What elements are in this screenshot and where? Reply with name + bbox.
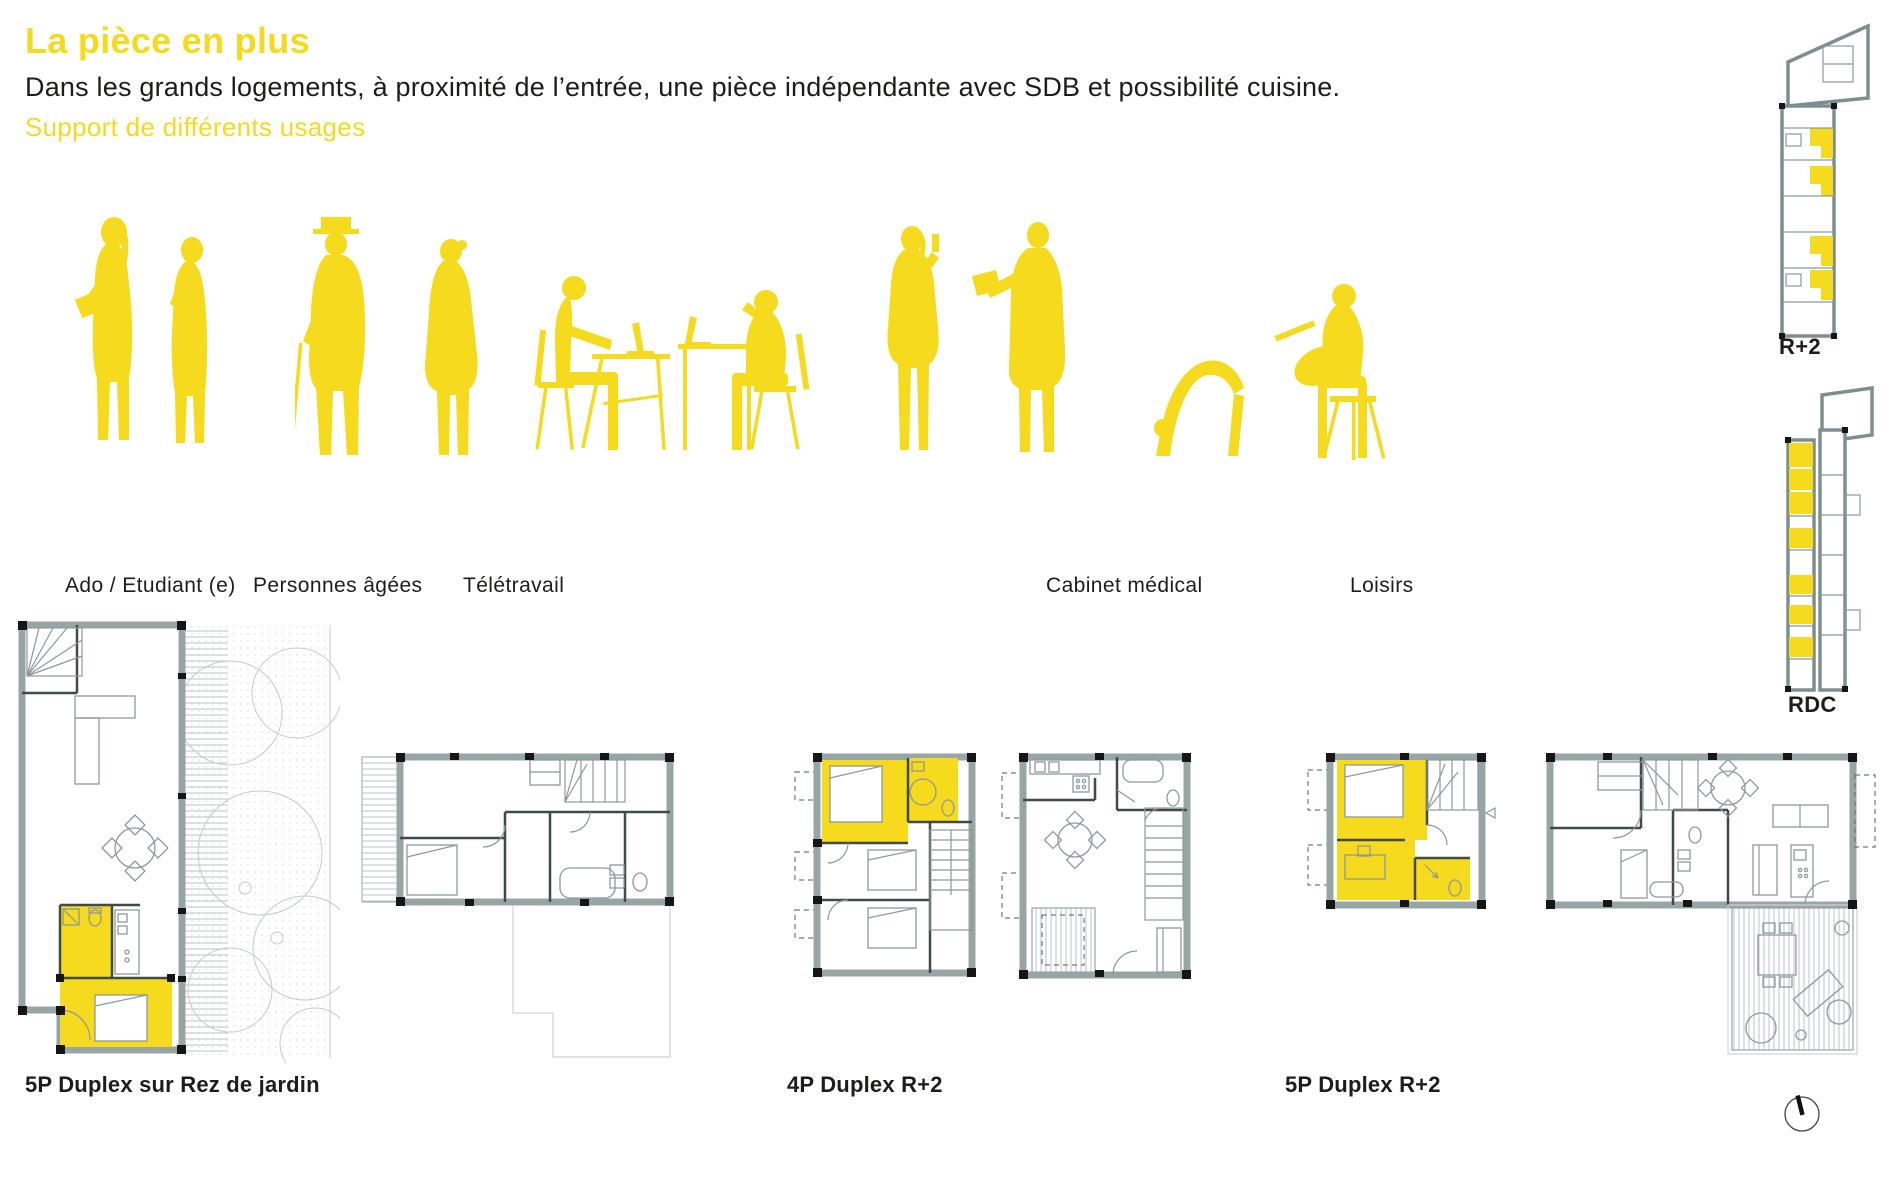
slide-la-piece-en-plus: La pièce en plus Dans les grands logemen… [0,0,1900,1187]
figure-doctor [972,222,1065,452]
figure-gymnast [1154,360,1244,456]
silhouette-loisirs [1148,276,1396,462]
figure-teen-standing [170,237,207,443]
floor-plan-5p-rez-de-jardin [15,618,340,1063]
usage-label-loisirs: Loisirs [1350,574,1413,598]
page-tagline: Support de différents usages [25,112,365,143]
entry-arrow [1486,808,1495,818]
floor-plan-4p-lower [995,750,1195,982]
figure-elderly-man [295,217,365,455]
dwelling-outline [1550,757,1853,905]
key-plan-upper [1765,18,1890,348]
usage-label-cabinet-medical: Cabinet médical [1046,574,1203,598]
usage-label-teletravail: Télétravail [463,574,564,598]
floor-plan-label-1: 5P Duplex sur Rez de jardin [25,1072,320,1098]
floor-plan-duplex-upper-level [355,750,675,1062]
page-title: La pièce en plus [25,20,310,62]
key-plan-upper-label: R+2 [1779,334,1821,360]
figure-teen-reading [75,217,132,440]
floor-plan-label-3: 5P Duplex R+2 [1285,1072,1441,1098]
floor-plan-label-2: 4P Duplex R+2 [787,1072,943,1098]
usage-label-personnes-agees: Personnes âgées [253,574,422,598]
silhouette-personnes-agees [295,215,490,460]
floor-plan-4p-upper [788,750,983,982]
silhouette-cabinet-medical [868,222,1093,457]
lower-level-footprint [513,902,670,1057]
key-plan-ground-label: RDC [1788,692,1837,718]
key-upper-wing [1788,26,1868,106]
garden-area [178,625,340,1063]
usage-label-ado-etudiant: Ado / Etudiant (e) [65,574,236,598]
key-ground-bar-right [1820,430,1845,690]
balcony-deck [362,757,400,902]
silhouette-teletravail [528,268,818,460]
silhouette-ado-etudiant [72,212,222,455]
figure-guitarist [1274,284,1385,460]
figure-worker-right [732,290,809,450]
figure-worker-left [534,276,618,450]
page-subtitle: Dans les grands logements, à proximité d… [25,72,1525,103]
figure-nurse [887,226,939,450]
north-arrow-icon [1780,1092,1825,1137]
loggia [1032,908,1095,972]
floor-plan-5p-upper [1300,750,1500,915]
terrace [1728,905,1857,1054]
floor-plan-5p-lower [1543,750,1883,1060]
window-box [1855,775,1875,847]
figure-elderly-woman [425,239,478,455]
key-plan-ground [1765,385,1890,715]
